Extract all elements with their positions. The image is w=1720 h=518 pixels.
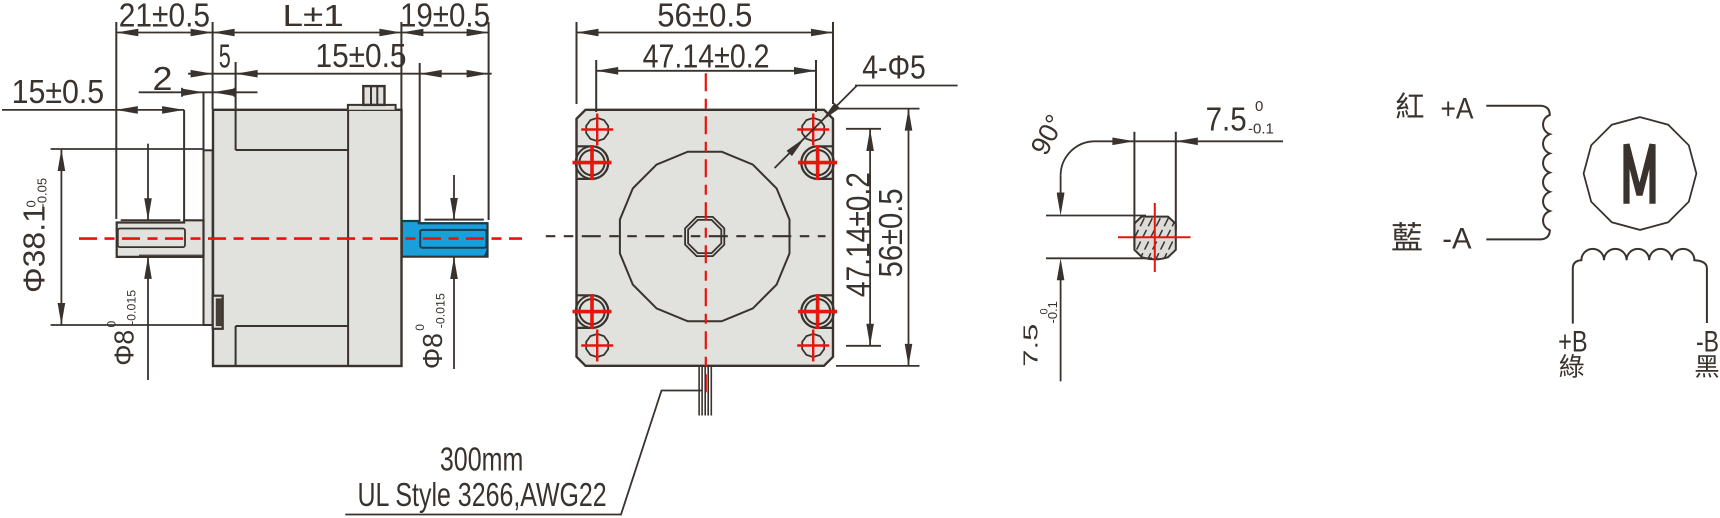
svg-text:56±0.5: 56±0.5 bbox=[872, 188, 909, 277]
svg-text:300mm: 300mm bbox=[440, 440, 523, 477]
svg-text:7.5: 7.5 bbox=[1206, 101, 1247, 138]
svg-text:4-Φ5: 4-Φ5 bbox=[862, 49, 926, 86]
svg-text:Φ8: Φ8 bbox=[108, 330, 139, 366]
svg-text:UL Style 3266,AWG22: UL Style 3266,AWG22 bbox=[358, 476, 607, 513]
svg-text:56±0.5: 56±0.5 bbox=[657, 0, 752, 34]
svg-text:7.5: 7.5 bbox=[1021, 324, 1043, 367]
svg-text:-A: -A bbox=[1442, 223, 1471, 256]
svg-text:+B: +B bbox=[1558, 326, 1588, 359]
svg-text:Φ8: Φ8 bbox=[417, 333, 448, 369]
svg-text:47.14±0.2: 47.14±0.2 bbox=[840, 172, 877, 297]
svg-text:2: 2 bbox=[153, 60, 173, 97]
svg-text:-0.1: -0.1 bbox=[1045, 301, 1060, 323]
svg-text:-0.1: -0.1 bbox=[1248, 120, 1274, 137]
svg-text:21±0.5: 21±0.5 bbox=[119, 0, 210, 33]
svg-text:-0.015: -0.015 bbox=[433, 293, 447, 328]
svg-text:Φ38.1: Φ38.1 bbox=[17, 205, 52, 293]
svg-text:19±0.5: 19±0.5 bbox=[400, 0, 490, 33]
svg-text:15±0.5: 15±0.5 bbox=[12, 73, 105, 110]
svg-text:15±0.5: 15±0.5 bbox=[316, 37, 407, 74]
svg-text:-B: -B bbox=[1696, 326, 1719, 359]
svg-text:47.14±0.2: 47.14±0.2 bbox=[643, 37, 770, 74]
svg-text:5: 5 bbox=[219, 38, 231, 75]
svg-text:-0.015: -0.015 bbox=[125, 290, 139, 325]
svg-text:0: 0 bbox=[413, 324, 427, 331]
svg-text:0: 0 bbox=[105, 321, 119, 328]
svg-text:+A: +A bbox=[1441, 93, 1474, 126]
svg-text:L±1: L±1 bbox=[283, 0, 344, 33]
svg-text:-0.05: -0.05 bbox=[35, 178, 50, 208]
svg-text:0: 0 bbox=[1255, 98, 1263, 115]
